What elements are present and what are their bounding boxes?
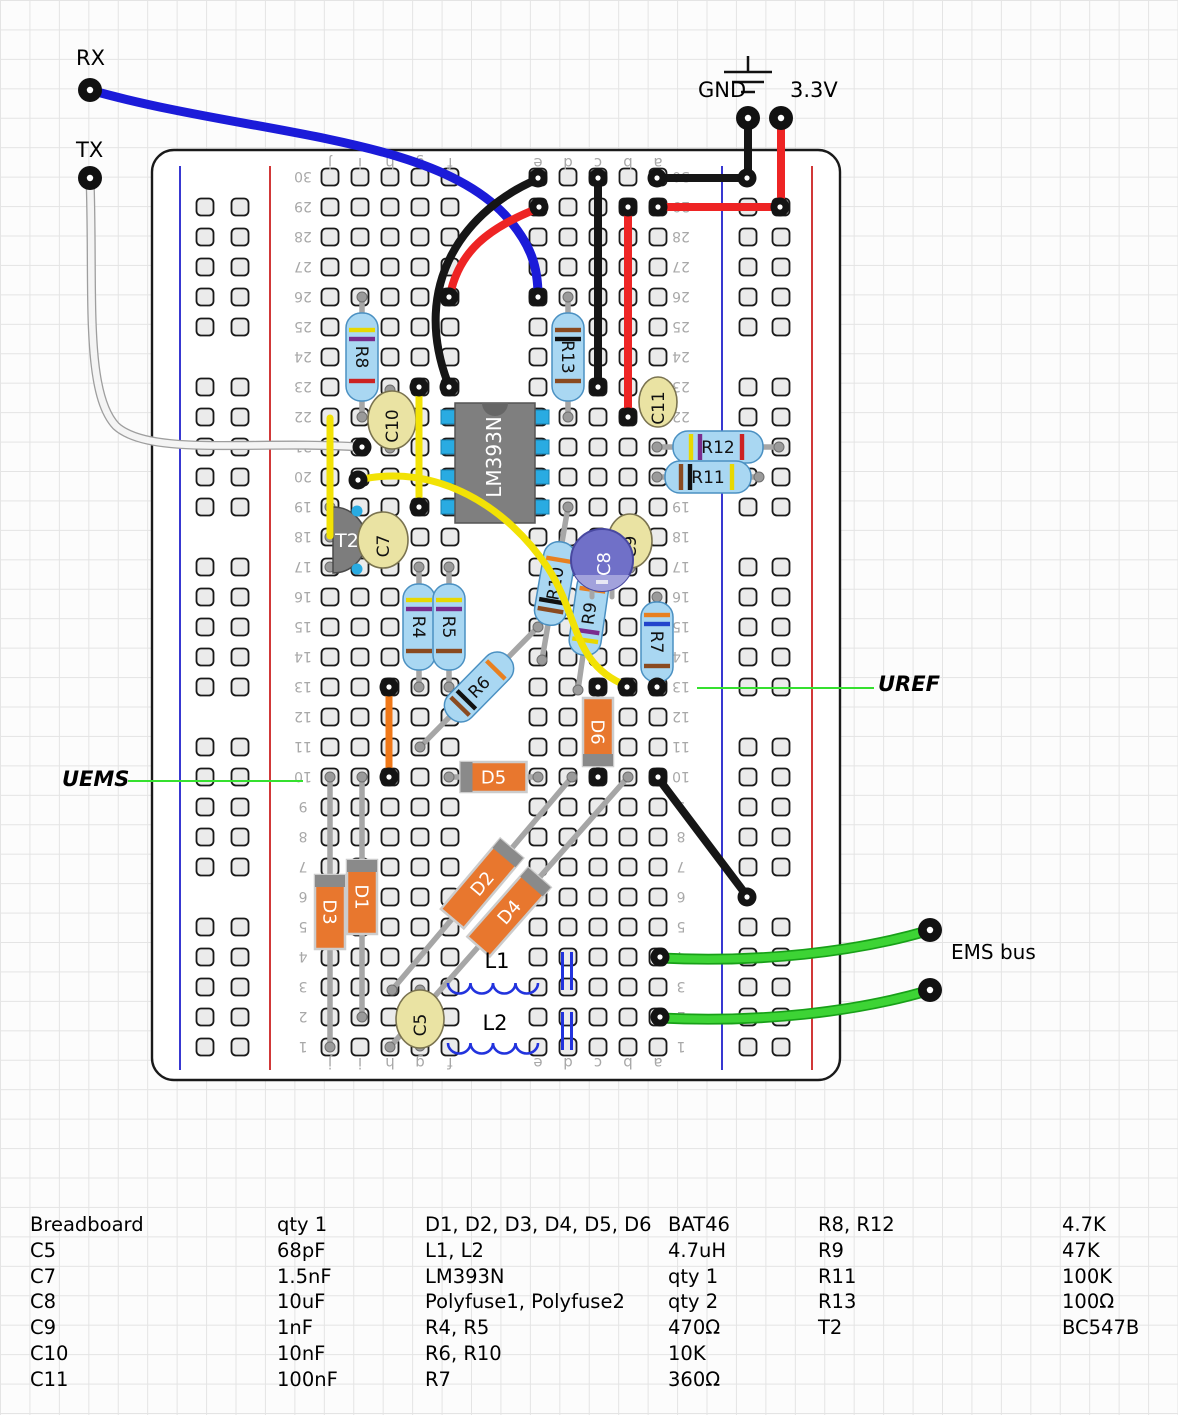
rail-hole-3-5 bbox=[773, 919, 790, 936]
hole-d27 bbox=[560, 259, 577, 276]
cathode-band bbox=[347, 860, 377, 872]
junction-pinhole bbox=[777, 204, 782, 209]
rail-hole-3-26 bbox=[773, 289, 790, 306]
parts-list-row: R6, R1010K bbox=[425, 1341, 730, 1367]
column-letter-a-1: a bbox=[653, 1054, 662, 1072]
part-value: 10uF bbox=[277, 1289, 325, 1315]
part-name: C5 bbox=[30, 1238, 277, 1264]
color-band bbox=[644, 613, 670, 617]
gnd-label: GND bbox=[698, 78, 746, 102]
parts-list-row: Breadboardqty 1 bbox=[30, 1212, 338, 1238]
hole-h5 bbox=[382, 919, 399, 936]
hole-b9 bbox=[620, 799, 637, 816]
rail-hole-2-10 bbox=[740, 769, 757, 786]
terminal-pinhole bbox=[927, 927, 933, 933]
rail-hole-2-3 bbox=[740, 979, 757, 996]
rail-hole-1-14 bbox=[232, 649, 249, 666]
hole-b5 bbox=[620, 919, 637, 936]
hole-h27 bbox=[382, 259, 399, 276]
junction-pinhole bbox=[744, 894, 749, 899]
hole-i28 bbox=[352, 229, 369, 246]
junction-pinhole bbox=[446, 294, 451, 299]
cathode-band bbox=[583, 754, 613, 766]
lead-end bbox=[444, 562, 454, 572]
row-number-13-1: 13 bbox=[672, 678, 690, 694]
column-letter-f-0: f bbox=[447, 154, 453, 172]
hole-j26 bbox=[322, 289, 339, 306]
rail-hole-2-9 bbox=[740, 799, 757, 816]
rail-hole-0-8 bbox=[197, 829, 214, 846]
hole-c20 bbox=[590, 469, 607, 486]
hole-c7 bbox=[590, 859, 607, 876]
color-band bbox=[644, 622, 670, 626]
terminal-pinhole bbox=[87, 175, 93, 181]
hole-e25 bbox=[530, 319, 547, 336]
hole-h14 bbox=[382, 649, 399, 666]
rail-hole-0-5 bbox=[197, 919, 214, 936]
part-name: C8 bbox=[30, 1289, 277, 1315]
ic-pin bbox=[535, 440, 549, 454]
rail-hole-0-9 bbox=[197, 799, 214, 816]
uems-label: UEMS bbox=[62, 767, 129, 791]
inductor-label: L2 bbox=[482, 1011, 507, 1035]
hole-f9 bbox=[442, 799, 459, 816]
hole-i15 bbox=[352, 619, 369, 636]
rail-hole-0-2 bbox=[197, 1009, 214, 1026]
part-name: Breadboard bbox=[30, 1212, 277, 1238]
rail-hole-1-19 bbox=[232, 499, 249, 516]
resistor-r4[interactable]: R4 bbox=[403, 584, 435, 670]
hole-i1 bbox=[352, 1039, 369, 1056]
row-number-30-0: 30 bbox=[294, 168, 312, 184]
hole-g28 bbox=[412, 229, 429, 246]
rail-hole-3-23 bbox=[773, 379, 790, 396]
hole-j24 bbox=[322, 349, 339, 366]
parts-list-row: Polyfuse1, Polyfuse2qty 2 bbox=[425, 1289, 730, 1315]
transistor-label: T2 bbox=[334, 530, 359, 552]
breadboard-diagram: 1122334455667788991010111112121313141415… bbox=[0, 0, 1178, 1415]
column-letter-b-0: b bbox=[623, 154, 633, 172]
lead-end bbox=[567, 772, 577, 782]
hole-b1 bbox=[620, 1039, 637, 1056]
part-name: R7 bbox=[425, 1367, 668, 1393]
terminal-pinhole bbox=[927, 987, 933, 993]
hole-d6 bbox=[560, 889, 577, 906]
hole-g8 bbox=[412, 829, 429, 846]
hole-e4 bbox=[530, 949, 547, 966]
hole-d21 bbox=[560, 439, 577, 456]
hole-e23 bbox=[530, 379, 547, 396]
color-band bbox=[730, 464, 734, 490]
part-name: R9 bbox=[818, 1238, 1062, 1264]
part-value: 360Ω bbox=[668, 1367, 720, 1393]
resistor-r11[interactable]: R11 bbox=[665, 461, 751, 493]
ems-bus-label: EMS bus bbox=[951, 940, 1036, 964]
rail-hole-1-1 bbox=[232, 1039, 249, 1056]
junction-pinhole bbox=[535, 294, 540, 299]
hole-h6 bbox=[382, 889, 399, 906]
junction-pinhole bbox=[654, 684, 659, 689]
hole-j12 bbox=[322, 709, 339, 726]
rail-hole-1-10 bbox=[232, 769, 249, 786]
rail-hole-0-14 bbox=[197, 649, 214, 666]
hole-a25 bbox=[650, 319, 667, 336]
rail-hole-0-3 bbox=[197, 979, 214, 996]
rail-hole-3-17 bbox=[773, 559, 790, 576]
ic-label: LM393N bbox=[482, 416, 506, 498]
diode-d3[interactable]: D3 bbox=[315, 875, 345, 949]
part-name: C9 bbox=[30, 1315, 277, 1341]
rail-hole-1-11 bbox=[232, 739, 249, 756]
row-number-24-0: 24 bbox=[294, 348, 312, 364]
rail-hole-3-27 bbox=[773, 259, 790, 276]
rail-hole-2-11 bbox=[740, 739, 757, 756]
hole-c4 bbox=[590, 949, 607, 966]
row-number-26-1: 26 bbox=[672, 288, 690, 304]
junction-pinhole bbox=[595, 384, 600, 389]
parts-list-row: R947K bbox=[818, 1238, 1139, 1264]
lead-end bbox=[414, 562, 424, 572]
row-number-29-0: 29 bbox=[294, 198, 312, 214]
lead-end bbox=[325, 1042, 335, 1052]
cathode-band bbox=[315, 875, 345, 887]
row-number-2-0: 2 bbox=[299, 1008, 308, 1024]
hole-h29 bbox=[382, 199, 399, 216]
rail-hole-3-15 bbox=[773, 619, 790, 636]
part-value: 100nF bbox=[277, 1367, 338, 1393]
hole-d20 bbox=[560, 469, 577, 486]
hole-f4 bbox=[442, 949, 459, 966]
lead-end bbox=[325, 772, 335, 782]
row-number-9-0: 9 bbox=[299, 798, 308, 814]
rail-hole-0-20 bbox=[197, 469, 214, 486]
lead-end bbox=[357, 772, 367, 782]
lead-end bbox=[357, 412, 367, 422]
parts-list-row: R7360Ω bbox=[425, 1367, 730, 1393]
resistor-r13[interactable]: R13 bbox=[552, 313, 584, 401]
lead-end bbox=[537, 655, 547, 665]
hole-j14 bbox=[322, 649, 339, 666]
junction-pinhole bbox=[416, 504, 421, 509]
rail-hole-2-25 bbox=[740, 319, 757, 336]
row-number-3-0: 3 bbox=[299, 978, 308, 994]
hole-b14 bbox=[620, 649, 637, 666]
rail-hole-0-10 bbox=[197, 769, 214, 786]
hole-b2 bbox=[620, 1009, 637, 1026]
rail-hole-0-13 bbox=[197, 679, 214, 696]
part-value: 68pF bbox=[277, 1238, 325, 1264]
part-value: 100K bbox=[1062, 1264, 1112, 1290]
row-number-15-0: 15 bbox=[294, 618, 312, 634]
parts-list-row: C71.5nF bbox=[30, 1264, 338, 1290]
column-letter-g-1: g bbox=[415, 1054, 425, 1072]
hole-h4 bbox=[382, 949, 399, 966]
rail-hole-1-15 bbox=[232, 619, 249, 636]
junction-pinhole bbox=[595, 684, 600, 689]
hole-d29 bbox=[560, 199, 577, 216]
row-number-6-0: 6 bbox=[298, 888, 307, 904]
part-value: 10nF bbox=[277, 1341, 325, 1367]
color-band bbox=[436, 649, 462, 653]
rail-hole-1-3 bbox=[232, 979, 249, 996]
hole-g26 bbox=[412, 289, 429, 306]
rail-hole-1-25 bbox=[232, 319, 249, 336]
ic-pin bbox=[441, 440, 455, 454]
resistor-r7[interactable]: R7 bbox=[641, 602, 673, 682]
color-band bbox=[689, 434, 693, 460]
row-number-11-1: 11 bbox=[672, 738, 690, 754]
column-letter-i-1: i bbox=[358, 1054, 362, 1072]
capacitor-label: C8 bbox=[594, 552, 615, 576]
transistor-pin bbox=[352, 564, 363, 575]
hole-b7 bbox=[620, 859, 637, 876]
hole-j11 bbox=[322, 739, 339, 756]
rail-hole-0-19 bbox=[197, 499, 214, 516]
diode-label: D3 bbox=[319, 899, 340, 924]
hole-e24 bbox=[530, 349, 547, 366]
hole-c19 bbox=[590, 499, 607, 516]
row-number-17-1: 17 bbox=[672, 558, 690, 574]
hole-b11 bbox=[620, 739, 637, 756]
rail-hole-1-16 bbox=[232, 589, 249, 606]
column-letter-f-1: f bbox=[447, 1054, 453, 1072]
part-name: R6, R10 bbox=[425, 1341, 668, 1367]
row-number-16-0: 16 bbox=[294, 588, 312, 604]
hole-b15 bbox=[620, 619, 637, 636]
rail-hole-3-14 bbox=[773, 649, 790, 666]
rail-hole-0-25 bbox=[197, 319, 214, 336]
cathode-band bbox=[461, 762, 473, 792]
hole-d5 bbox=[560, 919, 577, 936]
lead-end bbox=[414, 682, 424, 692]
hole-g24 bbox=[412, 349, 429, 366]
terminal-pinhole bbox=[745, 115, 751, 121]
rx-label: RX bbox=[76, 46, 105, 70]
hole-j23 bbox=[322, 379, 339, 396]
row-number-7-0: 7 bbox=[299, 858, 308, 874]
column-letter-j-0: j bbox=[328, 154, 333, 172]
junction-pinhole bbox=[386, 684, 391, 689]
resistor-r5[interactable]: R5 bbox=[433, 584, 465, 670]
hole-i13 bbox=[352, 679, 369, 696]
hole-f25 bbox=[442, 319, 459, 336]
hole-g18 bbox=[412, 529, 429, 546]
hole-h16 bbox=[382, 589, 399, 606]
junction-pinhole bbox=[655, 774, 660, 779]
rail-hole-2-8 bbox=[740, 829, 757, 846]
part-name: R13 bbox=[818, 1289, 1062, 1315]
row-number-14-1: 14 bbox=[672, 648, 690, 664]
rail-hole-1-7 bbox=[232, 859, 249, 876]
lead-end bbox=[652, 442, 662, 452]
hole-h26 bbox=[382, 289, 399, 306]
row-number-18-0: 18 bbox=[294, 528, 312, 544]
rail-hole-2-23 bbox=[740, 379, 757, 396]
row-number-13-0: 13 bbox=[294, 678, 312, 694]
lead-end bbox=[387, 985, 397, 995]
ic-pin bbox=[441, 500, 455, 514]
hole-a12 bbox=[650, 709, 667, 726]
rail-hole-0-4 bbox=[197, 949, 214, 966]
resistor-label: R12 bbox=[701, 438, 734, 458]
rail-hole-2-17 bbox=[740, 559, 757, 576]
part-name: T2 bbox=[818, 1315, 1062, 1341]
part-name: L1, L2 bbox=[425, 1238, 668, 1264]
row-number-28-0: 28 bbox=[294, 228, 312, 244]
rail-hole-1-13 bbox=[232, 679, 249, 696]
part-name: C7 bbox=[30, 1264, 277, 1290]
row-number-23-0: 23 bbox=[294, 378, 312, 394]
column-letter-e-1: e bbox=[533, 1054, 542, 1072]
rail-hole-3-8 bbox=[773, 829, 790, 846]
diode-d6[interactable]: D6 bbox=[583, 698, 613, 766]
rail-hole-0-26 bbox=[197, 289, 214, 306]
hole-a1 bbox=[650, 1039, 667, 1056]
rail-hole-2-19 bbox=[740, 499, 757, 516]
parts-list-row: R13100Ω bbox=[818, 1289, 1139, 1315]
diode-d5[interactable]: D5 bbox=[461, 762, 527, 792]
hole-b21 bbox=[620, 439, 637, 456]
hole-b4 bbox=[620, 949, 637, 966]
ic-pin bbox=[535, 500, 549, 514]
hole-c6 bbox=[590, 889, 607, 906]
part-name: R8, R12 bbox=[818, 1212, 1062, 1238]
rail-hole-3-22 bbox=[773, 409, 790, 426]
row-number-11-0: 11 bbox=[294, 738, 312, 754]
row-number-6-1: 6 bbox=[676, 888, 685, 904]
hole-a17 bbox=[650, 559, 667, 576]
rail-hole-2-15 bbox=[740, 619, 757, 636]
hole-d28 bbox=[560, 229, 577, 246]
lead-end bbox=[563, 412, 573, 422]
color-band bbox=[644, 664, 670, 668]
part-name: D1, D2, D3, D4, D5, D6 bbox=[425, 1212, 668, 1238]
rail-hole-3-1 bbox=[773, 1039, 790, 1056]
junction-pinhole bbox=[655, 204, 660, 209]
hole-a26 bbox=[650, 289, 667, 306]
hole-b20 bbox=[620, 469, 637, 486]
row-number-1-0: 1 bbox=[299, 1038, 308, 1054]
part-value: 47K bbox=[1062, 1238, 1100, 1264]
lead-end bbox=[444, 772, 454, 782]
parts-list-row: LM393Nqty 1 bbox=[425, 1264, 730, 1290]
row-number-28-1: 28 bbox=[672, 228, 690, 244]
rail-hole-1-27 bbox=[232, 259, 249, 276]
part-value: 4.7uH bbox=[668, 1238, 726, 1264]
hole-h7 bbox=[382, 859, 399, 876]
lead-end bbox=[533, 772, 543, 782]
hole-c21 bbox=[590, 439, 607, 456]
resistor-r12[interactable]: R12 bbox=[673, 431, 763, 463]
resistor-label: R11 bbox=[691, 468, 724, 488]
diode-d1[interactable]: D1 bbox=[347, 860, 377, 934]
rail-hole-0-1 bbox=[197, 1039, 214, 1056]
hole-e5 bbox=[530, 919, 547, 936]
part-value: 10K bbox=[668, 1341, 706, 1367]
column-letter-d-1: d bbox=[563, 1054, 573, 1072]
junction-pinhole bbox=[595, 175, 600, 180]
hole-g29 bbox=[412, 199, 429, 216]
color-band bbox=[349, 337, 375, 341]
rail-hole-1-28 bbox=[232, 229, 249, 246]
lead-end bbox=[652, 592, 662, 602]
part-value: 100Ω bbox=[1062, 1289, 1114, 1315]
rail-hole-3-16 bbox=[773, 589, 790, 606]
ic-pin bbox=[535, 470, 549, 484]
hole-i14 bbox=[352, 649, 369, 666]
row-number-3-1: 3 bbox=[677, 978, 686, 994]
rail-hole-2-26 bbox=[740, 289, 757, 306]
hole-g6 bbox=[412, 889, 429, 906]
rail-hole-1-2 bbox=[232, 1009, 249, 1026]
row-number-25-0: 25 bbox=[294, 318, 312, 334]
hole-h15 bbox=[382, 619, 399, 636]
column-letter-i-0: i bbox=[358, 154, 362, 172]
row-number-16-1: 16 bbox=[672, 588, 690, 604]
row-number-5-1: 5 bbox=[677, 918, 686, 934]
rail-hole-2-5 bbox=[740, 919, 757, 936]
hole-g27 bbox=[412, 259, 429, 276]
rail-hole-3-28 bbox=[773, 229, 790, 246]
hole-c8 bbox=[590, 829, 607, 846]
resistor-label: R9 bbox=[578, 601, 601, 626]
hole-a11 bbox=[650, 739, 667, 756]
capacitor-label: C11 bbox=[649, 391, 669, 425]
row-number-15-1: 15 bbox=[672, 618, 690, 634]
part-name: R11 bbox=[818, 1264, 1062, 1290]
hole-g25 bbox=[412, 319, 429, 336]
row-number-14-0: 14 bbox=[294, 648, 312, 664]
row-number-27-0: 27 bbox=[294, 258, 312, 274]
hole-i11 bbox=[352, 739, 369, 756]
row-number-17-0: 17 bbox=[294, 558, 312, 574]
part-value: 4.7K bbox=[1062, 1212, 1106, 1238]
lead-end bbox=[563, 292, 573, 302]
parts-list-row: C91nF bbox=[30, 1315, 338, 1341]
rail-hole-2-16 bbox=[740, 589, 757, 606]
row-number-10-1: 10 bbox=[672, 768, 690, 784]
row-number-19-1: 19 bbox=[672, 498, 690, 514]
lead-end bbox=[623, 772, 633, 782]
hole-e13 bbox=[530, 679, 547, 696]
parts-list-row: C568pF bbox=[30, 1238, 338, 1264]
color-band bbox=[436, 607, 462, 611]
hole-j29 bbox=[322, 199, 339, 216]
hole-j25 bbox=[322, 319, 339, 336]
junction-pinhole bbox=[625, 414, 630, 419]
hole-g9 bbox=[412, 799, 429, 816]
resistor-r8[interactable]: R8 bbox=[346, 313, 378, 401]
rail-hole-3-25 bbox=[773, 319, 790, 336]
row-number-12-1: 12 bbox=[672, 708, 690, 724]
column-letter-h-1: h bbox=[385, 1054, 395, 1072]
circuit-canvas: 1122334455667788991010111112121313141415… bbox=[0, 0, 1178, 1415]
lead-end bbox=[573, 685, 583, 695]
hole-d9 bbox=[560, 799, 577, 816]
junction-pinhole bbox=[657, 954, 662, 959]
parts-list-row: D1, D2, D3, D4, D5, D6BAT46 bbox=[425, 1212, 730, 1238]
junction-pinhole bbox=[595, 774, 600, 779]
hole-b12 bbox=[620, 709, 637, 726]
color-band bbox=[406, 607, 432, 611]
color-band bbox=[555, 328, 581, 332]
parts-list-row: R11100K bbox=[818, 1264, 1139, 1290]
inductor-label: L1 bbox=[484, 949, 509, 973]
hole-g5 bbox=[412, 919, 429, 936]
lead-end bbox=[563, 502, 573, 512]
hole-a9 bbox=[650, 799, 667, 816]
rail-hole-1-26 bbox=[232, 289, 249, 306]
